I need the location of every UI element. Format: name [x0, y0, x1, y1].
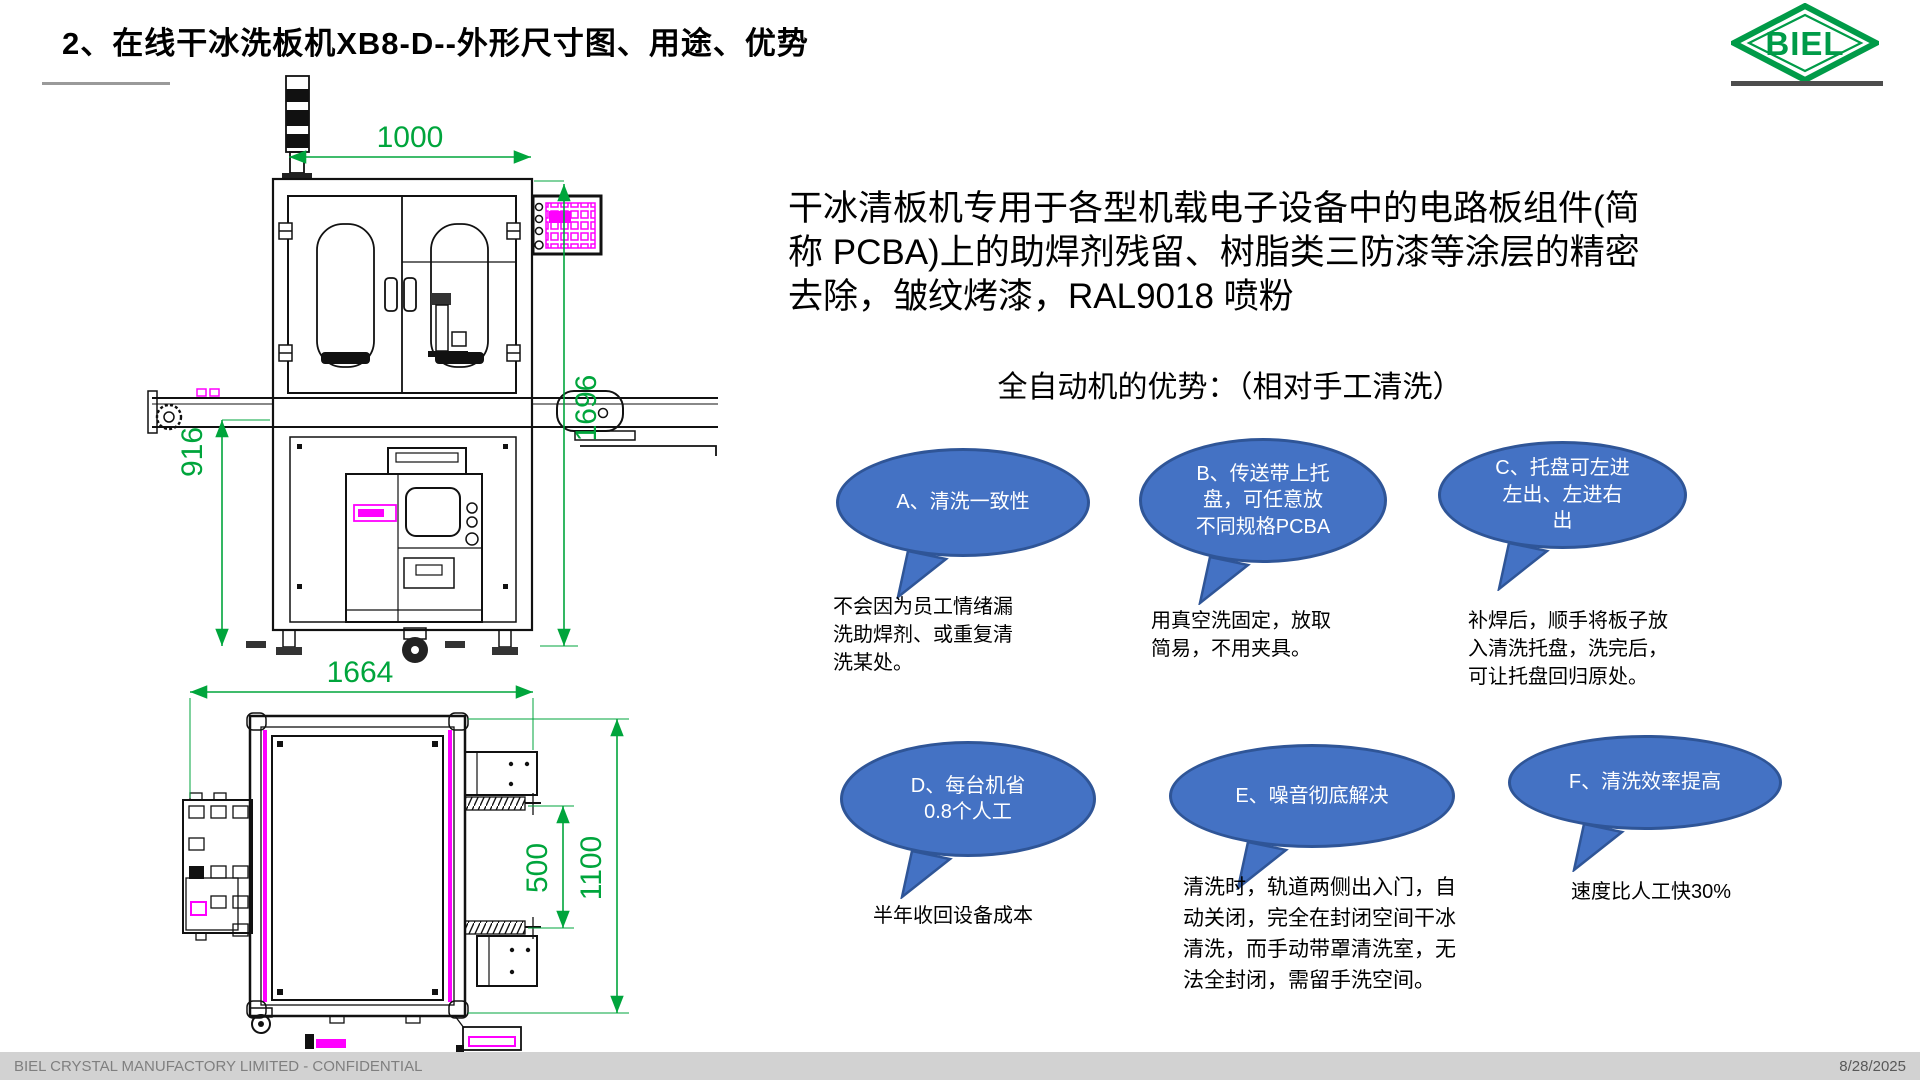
title-underline	[42, 82, 170, 85]
advantage-note-e: 清洗时，轨道两侧出入门，自 动关闭，完全在封闭空间干冰 清洗，而手动带罩清洗室，…	[1183, 872, 1456, 996]
logo-underline	[1731, 81, 1883, 86]
bubble-text-e: E、噪音彻底解决	[1169, 744, 1455, 848]
front-dimensions	[222, 157, 578, 646]
advantage-note-a: 不会因为员工情绪漏 洗助焊剂、或重复清 洗某处。	[833, 593, 1013, 677]
front-view	[148, 76, 718, 663]
conveyor	[148, 389, 718, 456]
advantage-note-d: 半年收回设备成本	[873, 902, 1033, 930]
footer-bar: BIEL CRYSTAL MANUFACTORY LIMITED - CONFI…	[0, 1052, 1920, 1080]
gripper-unit	[428, 293, 468, 357]
advantage-bubble-e: E、噪音彻底解决	[1169, 744, 1455, 848]
biel-logo-icon: BIEL	[1731, 3, 1879, 83]
door-handle	[385, 278, 397, 311]
footprint-outline	[250, 716, 465, 1016]
footer-confidential: BIEL CRYSTAL MANUFACTORY LIMITED - CONFI…	[14, 1058, 422, 1075]
bubble-text-d: D、每台机省 0.8个人工	[840, 741, 1096, 857]
advantage-note-f: 速度比人工快30%	[1571, 878, 1731, 906]
advantage-bubble-b: B、传送带上托 盘，可任意放 不同规格PCBA	[1139, 438, 1387, 563]
dim-front-width: 1000	[377, 121, 444, 154]
door-handle	[404, 278, 416, 311]
page-title: 2、在线干冰洗板机XB8-D--外形尺寸图、用途、优势	[62, 18, 809, 63]
slide-canvas: 1000 916 1696	[0, 0, 1920, 1080]
advantage-note-c: 补焊后，顺手将板子放 入清洗托盘，洗完后， 可让托盘回归原处。	[1468, 607, 1668, 691]
dim-depth: 1100	[575, 836, 608, 901]
advantage-bubble-c: C、托盘可左进 左出、左进右 出	[1438, 441, 1687, 549]
bubble-text-b: B、传送带上托 盘，可任意放 不同规格PCBA	[1139, 438, 1387, 563]
dim-rail-span: 500	[521, 843, 554, 893]
advantage-note-b: 用真空洗固定，放取 简易，不用夹具。	[1151, 607, 1331, 663]
advantage-bubble-f: F、清洗效率提高	[1508, 735, 1782, 830]
electrical-panel	[183, 793, 252, 940]
bubble-text-f: F、清洗效率提高	[1508, 735, 1782, 830]
advantages-heading: 全自动机的优势：（相对手工清洗）	[930, 362, 1530, 406]
base-section	[290, 437, 516, 622]
advantage-bubble-d: D、每台机省 0.8个人工	[840, 741, 1096, 857]
dim-top-width: 1664	[327, 656, 394, 689]
signal-tower-icon	[282, 76, 312, 179]
bubble-text-c: C、托盘可左进 左出、左进右 出	[1438, 441, 1687, 549]
bubble-text-a: A、清洗一致性	[836, 448, 1090, 557]
intro-paragraph: 干冰清板机专用于各型机载电子设备中的电路板组件(简 称 PCBA)上的助焊剂残留…	[788, 187, 1748, 319]
control-panel	[533, 196, 601, 254]
footer-date: 8/28/2025	[1839, 1058, 1906, 1075]
top-dimensions	[190, 692, 629, 1013]
logo-text: BIEL	[1765, 25, 1844, 62]
door-hinges	[279, 223, 520, 361]
dim-total-height: 1696	[570, 375, 603, 442]
top-view	[183, 713, 541, 1053]
dim-conveyor-height: 916	[176, 427, 209, 477]
advantage-bubble-a: A、清洗一致性	[836, 448, 1090, 557]
